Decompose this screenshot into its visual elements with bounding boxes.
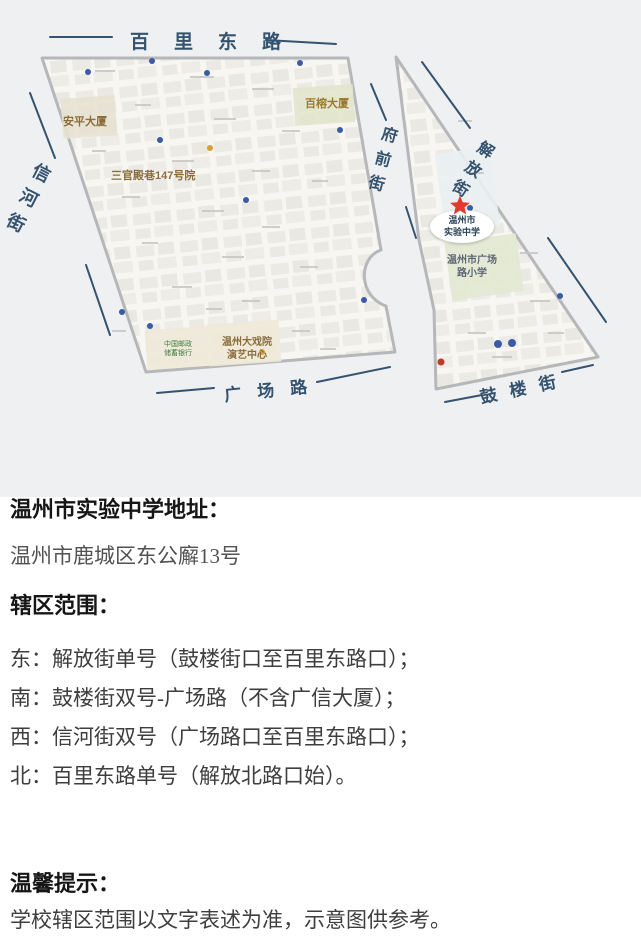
poi-label-primary-school: 温州市广场 路小学 — [447, 255, 497, 280]
article-page: 百里东路 信河街 府前街 解放街 广场路 鼓楼街 安平大厦 三官殿巷147号院 … — [0, 0, 641, 941]
school-marker-label-line2: 实验中学 — [444, 227, 480, 238]
poi-label-postal-bank-line2: 储蓄银行 — [164, 349, 192, 358]
poi-label-theater-line1: 温州大戏院 — [222, 337, 272, 350]
heading-district-scope: 辖区范围： — [10, 588, 120, 620]
poi-label-bairong-building: 百榕大厦 — [305, 95, 349, 111]
poi-label-sanguandian-alley: 三官殿巷147号院 — [111, 167, 195, 183]
poi-label-postal-bank: 中国邮政 储蓄银行 — [164, 340, 192, 358]
text-warm-tip: 学校辖区范围以文字表述为准，示意图供参考。 — [10, 904, 451, 934]
district-map: 百里东路 信河街 府前街 解放街 广场路 鼓楼街 安平大厦 三官殿巷147号院 … — [0, 0, 641, 497]
red-star-icon — [448, 194, 472, 222]
text-school-address: 温州市鹿城区东公廨13号 — [10, 540, 241, 570]
street-label-bailidong-road: 百里东路 — [130, 27, 306, 54]
poi-label-primary-school-line2: 路小学 — [447, 268, 497, 281]
district-map-shapes — [0, 0, 641, 497]
boundary-line-north: 北：百里东路单号（解放北路口始）。 — [10, 760, 357, 790]
heading-warm-tip: 温馨提示： — [10, 866, 120, 898]
boundary-line-south: 南：鼓楼街双号-广场路（不含广信大厦）； — [10, 682, 406, 712]
poi-label-theater-line2: 演艺中心 — [222, 350, 272, 363]
poi-label-primary-school-line1: 温州市广场 — [447, 255, 497, 268]
poi-label-theater: 温州大戏院 演艺中心 — [222, 337, 272, 362]
heading-school-address: 温州市实验中学地址： — [10, 492, 230, 524]
poi-label-postal-bank-line1: 中国邮政 — [164, 340, 192, 349]
poi-label-anping-building: 安平大厦 — [63, 113, 107, 129]
boundary-line-east: 东：解放街单号（鼓楼街口至百里东路口）； — [10, 643, 420, 673]
boundary-line-west: 西：信河街双号（广场路口至百里东路口）； — [10, 721, 420, 751]
